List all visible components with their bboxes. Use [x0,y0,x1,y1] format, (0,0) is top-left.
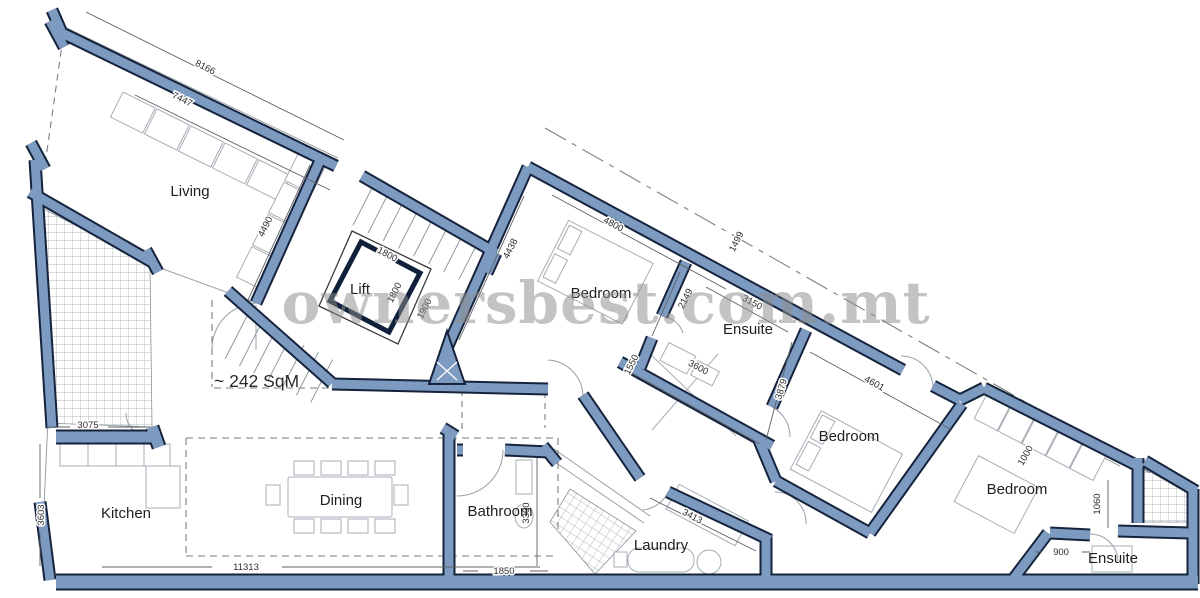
furniture-kitchen-counter [60,444,180,508]
dim-ens1-east: 3879 [773,378,790,401]
floor-plan-page: 8166 7447 4490 1800 1800 1900 4800 4438 … [0,0,1200,598]
dim-terrace-width: 3075 [77,420,98,431]
room-label-dining: Dining [320,492,363,509]
floor-plan-image: 8166 7447 4490 1800 1800 1900 4800 4438 … [0,0,1200,598]
room-label-ensuite2: Ensuite [1088,550,1138,567]
dim-shaft: 1060 [1092,493,1103,514]
terrace-hatch [42,208,152,427]
room-label-living: Living [170,183,209,200]
room-label-bathroom: Bathroom [467,503,532,520]
dim-boundary: 1499 [727,230,746,254]
dim-bathroom-width: 1850 [493,566,514,577]
room-label-bedroom2: Bedroom [819,428,880,445]
watermark-text: ownersbest.com.mt [282,269,931,337]
area-label: ~ 242 SqM [214,371,299,391]
dim-ground-width: 11313 [233,562,259,573]
dim-living-width: 8166 [193,58,217,77]
dim-ens2-door: 900 [1053,547,1069,558]
room-label-bedroom3: Bedroom [987,481,1048,498]
room-label-laundry: Laundry [634,537,689,554]
dim-kitchen-depth: 3603 [36,504,47,525]
dim-bed2-width: 4601 [862,374,886,394]
room-label-kitchen: Kitchen [101,505,151,522]
